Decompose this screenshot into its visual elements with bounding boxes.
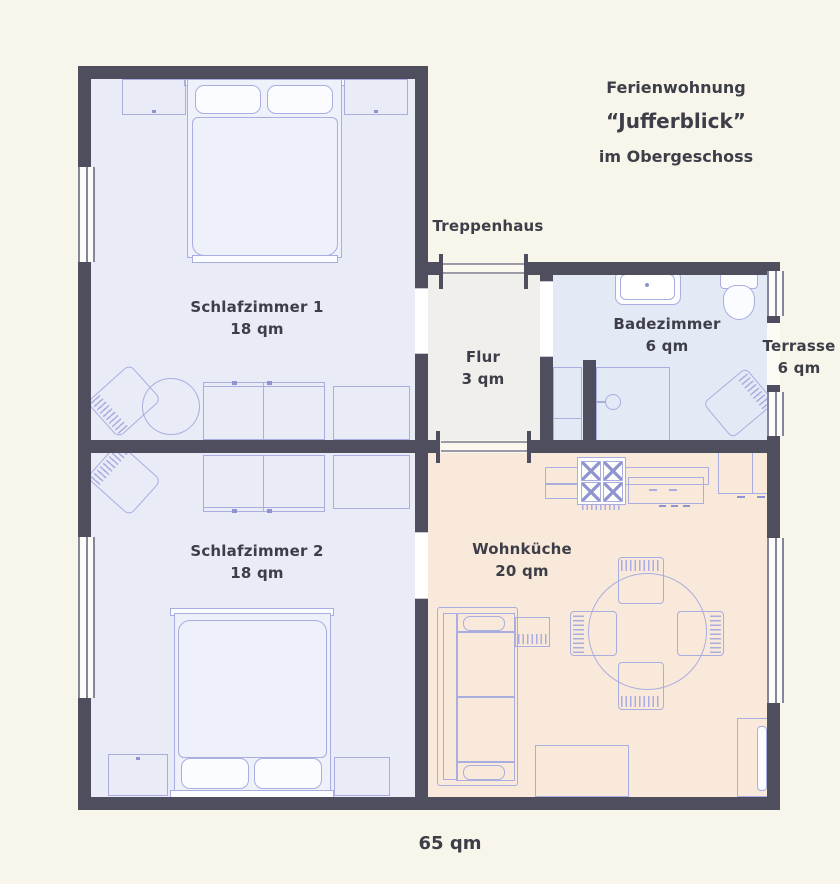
blanket [178,620,327,758]
sofa [437,607,518,786]
stove [577,457,626,505]
wall-segment [540,355,553,453]
wall-segment [767,316,780,323]
floor-plan: Ferienwohnung “Jufferblick” im Obergesch… [0,0,840,884]
blanket [192,117,338,256]
room-area: 6 qm [592,335,742,357]
wall-segment [78,66,428,79]
door-opening-schlafzimmer1 [415,288,428,354]
corner-cabinet [718,448,768,494]
total-area-label: 65 qm [390,833,510,854]
sink-counter [628,477,704,504]
wardrobe [203,455,325,512]
wall-segment [78,698,91,810]
entrance-door [443,263,524,274]
nightstand [122,79,186,115]
room-area: 20 qm [432,560,612,582]
wall-segment [415,66,428,288]
door-opening-schlafzimmer2 [415,532,428,599]
wall-segment [78,262,91,537]
pillow [195,85,261,114]
wall-segment [415,597,428,797]
dresser [333,455,410,509]
dresser [333,386,410,440]
wardrobe [203,382,325,440]
door-jamb [527,431,531,463]
room-name: Schlafzimmer 2 [157,540,357,562]
pillow [181,758,249,789]
room-area: 18 qm [157,318,357,340]
rug [535,745,629,797]
window [767,538,784,703]
room-label-badezimmer: Badezimmer 6 qm [592,313,742,357]
room-area: 6 qm [756,357,840,379]
room-name: Treppenhaus [408,215,568,237]
wall-segment [78,66,91,167]
title-line-2: “Jufferblick” [586,109,766,133]
room-label-wohnkueche: Wohnküche 20 qm [432,538,612,582]
room-name: Terrasse [756,335,840,357]
window [767,392,784,436]
room-name: Badezimmer [592,313,742,335]
nightstand [108,754,168,796]
bed-footboard [192,255,338,263]
window [767,271,784,316]
room-area: 3 qm [433,368,533,390]
tv [757,726,767,791]
side-table [515,617,550,647]
label-treppenhaus: Treppenhaus [408,215,568,237]
wall-segment [78,440,440,453]
room-label-flur: Flur 3 qm [433,346,533,390]
room-label-schlafzimmer2: Schlafzimmer 2 18 qm [157,540,357,584]
sink [615,270,681,305]
title-line-3: im Obergeschoss [586,147,766,166]
kitchen-counter [545,483,579,499]
wall-segment [526,262,780,275]
room-name: Schlafzimmer 1 [157,296,357,318]
room-name: Wohnküche [432,538,612,560]
wall-segment [540,262,553,281]
wall-segment [767,262,780,271]
door-opening-badezimmer [540,281,553,357]
wall-segment [767,453,780,538]
window [78,167,95,262]
door-jamb [524,254,528,289]
wall-segment [767,385,780,392]
room-area: 18 qm [157,562,357,584]
title-block: Ferienwohnung “Jufferblick” im Obergesch… [586,78,766,166]
room-name: Flur [433,346,533,368]
wall-segment [78,797,780,810]
room-label-terrasse: Terrasse 6 qm [756,335,840,379]
wall-segment [767,436,780,453]
title-line-1: Ferienwohnung [586,78,766,97]
wall-segment [767,703,780,810]
shower [596,367,670,442]
wall-segment [583,360,596,453]
passage-flur-wohnkueche [441,441,527,452]
pillow [254,758,322,789]
pillow [267,85,333,114]
dining-table [588,573,707,690]
window [78,537,95,698]
bath-cabinet [553,367,582,442]
nightstand [334,757,390,796]
room-label-schlafzimmer1: Schlafzimmer 1 18 qm [157,296,357,340]
door-jamb [436,431,440,463]
round-table [142,378,200,435]
nightstand [344,79,408,115]
door-jamb [439,254,443,289]
wall-segment [528,440,780,453]
